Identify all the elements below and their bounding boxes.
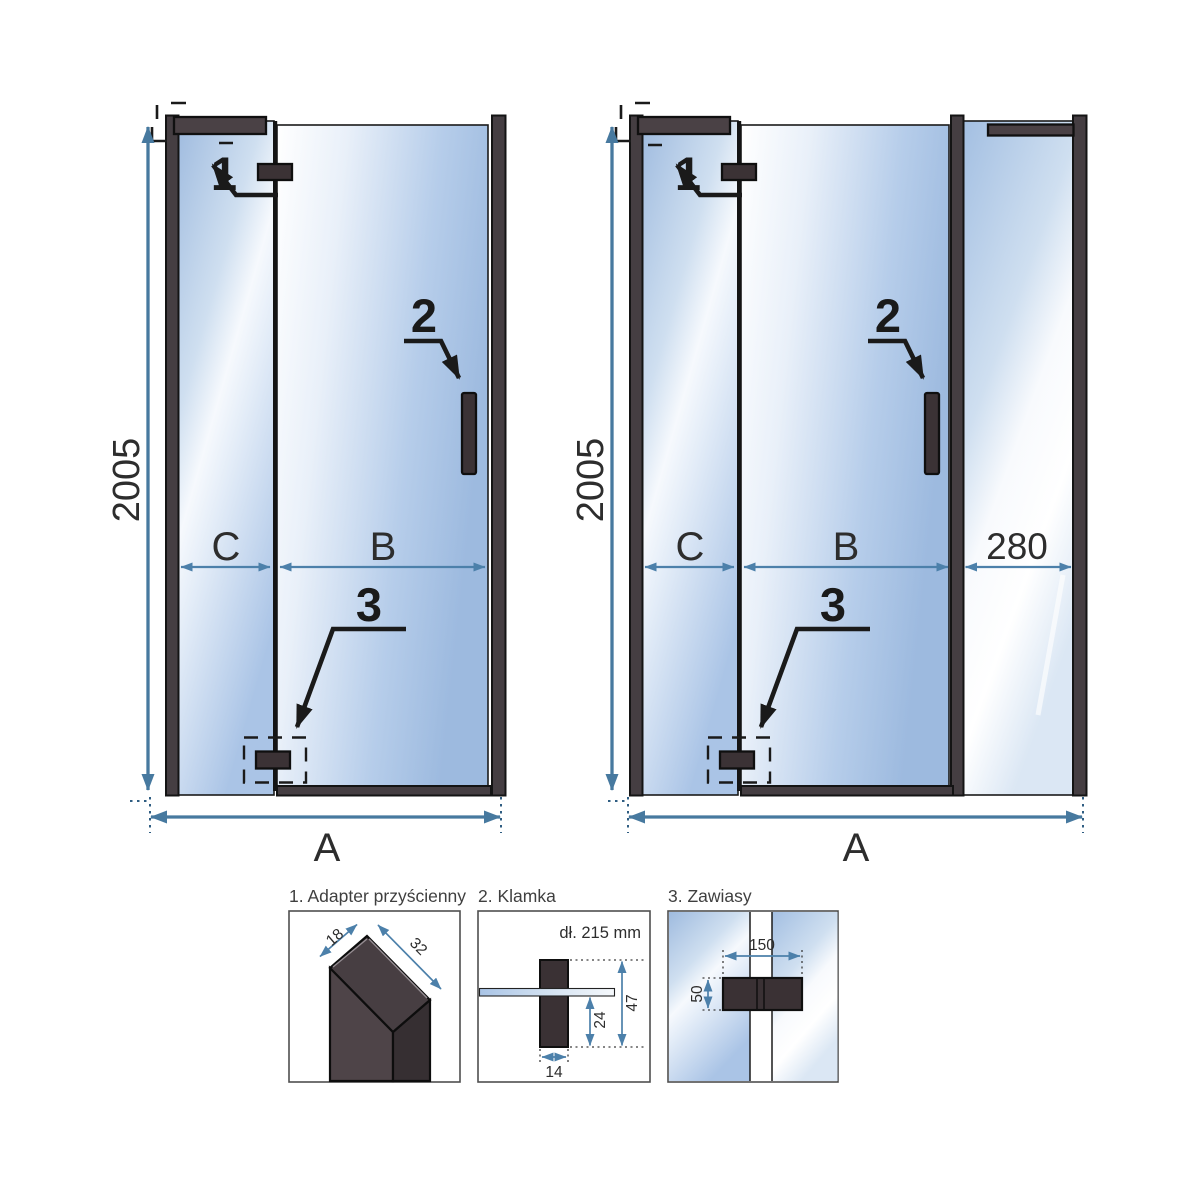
- handle-length-label: dł. 215 mm: [559, 924, 641, 942]
- left-wall-profile-left: [166, 116, 179, 796]
- right-total-width-label: A: [843, 826, 870, 870]
- handle-width-label: 14: [545, 1064, 563, 1081]
- right-door-glass-panel: [741, 125, 949, 786]
- right-segment-b-label: B: [833, 525, 860, 569]
- right-side-panel-label: 280: [986, 526, 1048, 567]
- right-door-pivot-edge: [737, 121, 741, 791]
- left-door-glass-panel: [277, 125, 488, 786]
- right-callout-3-label: 3: [820, 578, 846, 631]
- detail-hinges-title: 3. Zawiasy: [668, 886, 752, 906]
- handle-glass-strip: [480, 989, 615, 997]
- handle-cross-section: [540, 960, 568, 1047]
- left-top-adapter-bar: [174, 117, 266, 134]
- technical-drawing-page: 2005 C B A 1 2 3 2005 C: [0, 0, 1200, 1200]
- diagram-right: 2005 C B 280 A 1 2 3: [570, 103, 1087, 870]
- right-height-dimension-label: 2005: [570, 438, 612, 523]
- left-top-hinge: [258, 164, 292, 180]
- right-segment-c-label: C: [676, 525, 705, 569]
- handle-below-glass-label: 24: [592, 1011, 609, 1029]
- hinge-body: [723, 978, 802, 1010]
- right-door-handle: [925, 393, 939, 474]
- detail-handle-title: 2. Klamka: [478, 886, 556, 906]
- left-bottom-sill: [277, 786, 491, 796]
- right-side-glass-panel: [964, 121, 1074, 795]
- detail-hinges: 3. Zawiasy 150 50: [668, 886, 838, 1082]
- detail-adapter: 1. Adapter przyścienny 18 32: [289, 886, 466, 1082]
- shower-door-spec-drawing: 2005 C B A 1 2 3 2005 C: [0, 0, 1200, 1200]
- left-callout-3-label: 3: [356, 578, 382, 631]
- left-door-handle: [462, 393, 476, 474]
- right-bottom-sill: [741, 786, 953, 796]
- left-fixed-glass-panel: [178, 121, 274, 795]
- left-segment-c-label: C: [212, 525, 241, 569]
- right-side-panel-top-bracket: [988, 125, 1074, 136]
- left-callout-2-label: 2: [411, 289, 437, 342]
- left-segment-b-label: B: [370, 525, 397, 569]
- left-height-dimension-label: 2005: [106, 438, 148, 523]
- hinge-width-label: 150: [749, 937, 775, 954]
- handle-total-height-label: 47: [624, 994, 641, 1011]
- right-callout-2-label: 2: [875, 289, 901, 342]
- left-bottom-hinge: [256, 752, 290, 769]
- left-wall-profile-right: [492, 116, 506, 796]
- hinge-height-label: 50: [689, 985, 706, 1003]
- right-wall-profile-right: [1073, 116, 1087, 796]
- right-wall-profile-left: [630, 116, 643, 796]
- right-top-adapter-bar: [638, 117, 730, 134]
- right-top-hinge: [722, 164, 756, 180]
- detail-handle: 2. Klamka dł. 215 mm 47 24 14: [478, 886, 650, 1082]
- left-callout-1-label: 1: [211, 147, 237, 200]
- left-total-width-label: A: [314, 826, 341, 870]
- right-fixed-glass-panel: [642, 121, 738, 795]
- right-bottom-hinge: [720, 752, 754, 769]
- left-door-pivot-edge: [273, 121, 277, 791]
- detail-adapter-title: 1. Adapter przyścienny: [289, 886, 466, 906]
- right-callout-1-label: 1: [675, 147, 701, 200]
- diagram-left: 2005 C B A 1 2 3: [106, 103, 506, 870]
- right-middle-profile: [951, 116, 964, 796]
